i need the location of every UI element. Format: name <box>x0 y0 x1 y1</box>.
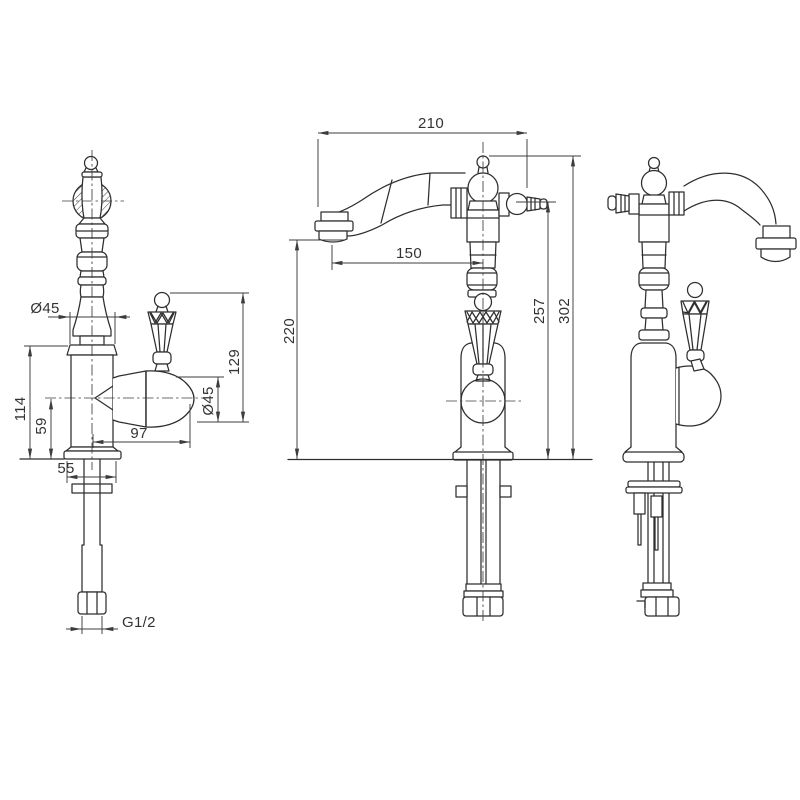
dim-label-220: 220 <box>281 318 298 344</box>
dim-label-302: 302 <box>556 298 573 324</box>
front-spout-bottom-edge <box>347 205 465 236</box>
front-shank-band <box>466 584 501 591</box>
dim-label-spout-diameter: Ø45 <box>30 300 59 317</box>
front-shank-ring <box>464 591 503 597</box>
persp-handle-collar <box>687 350 704 361</box>
persp-neck-ring1 <box>641 308 667 318</box>
dim-label-thread: G1/2 <box>122 614 156 631</box>
dim-label-129: 129 <box>226 349 243 375</box>
persp-neck-waist1 <box>645 290 663 308</box>
persp-neck-barrel <box>639 268 669 290</box>
side-base-plate <box>64 451 121 459</box>
persp-arm-tip <box>608 196 616 210</box>
side-mounting-washer <box>72 484 112 493</box>
dim-label-valve-diameter: Ø45 <box>200 386 217 415</box>
front-spout-mount-collar <box>451 188 467 218</box>
persp-spout-top-edge <box>684 173 776 224</box>
persp-handle-ball <box>688 283 703 298</box>
faucet-dimension-drawing: Ø45 114 59 129 <box>0 0 800 800</box>
front-shank-tab-left <box>456 486 467 497</box>
side-handle-stem <box>155 364 169 371</box>
front-shank-tab-right <box>500 486 511 497</box>
persp-stud-head-left <box>634 493 645 514</box>
persp-outlet-tip <box>761 249 790 262</box>
persp-finial-knob <box>649 158 660 169</box>
front-outlet-ring-1 <box>321 212 348 221</box>
side-supply-pipe <box>82 459 102 592</box>
persp-neck-ring2 <box>639 330 669 340</box>
side-valve-dome <box>146 371 194 427</box>
dim-label-59: 59 <box>33 417 50 434</box>
dim-side-inlet-thread: G1/2 <box>66 614 156 634</box>
side-handle-ball <box>155 293 170 308</box>
side-view-dimensions: Ø45 114 59 129 <box>12 293 249 634</box>
front-view-dimensions: 210 150 220 257 <box>281 115 581 459</box>
persp-base-bevel <box>625 447 682 452</box>
front-outlet-ring-2 <box>315 221 353 231</box>
persp-finial-collar <box>642 195 666 204</box>
persp-washer-top <box>628 481 680 487</box>
front-spout-top-edge <box>325 173 465 216</box>
dim-side-body-top-height: 114 <box>12 346 68 459</box>
dim-front-outlet-offset: 150 <box>332 245 483 270</box>
side-view: Ø45 114 59 129 <box>12 150 249 634</box>
side-finial-knob <box>85 157 98 170</box>
dim-label-55: 55 <box>57 460 74 477</box>
persp-finial-ball <box>642 171 667 196</box>
side-view-faucet-outline <box>20 157 194 615</box>
persp-arm-collar <box>629 194 639 214</box>
dim-label-97: 97 <box>130 425 147 442</box>
persp-stud-rod-left <box>638 514 641 545</box>
dim-label-150: 150 <box>396 245 422 262</box>
dim-front-handle-axis-height: 257 <box>516 202 556 459</box>
persp-base-plate <box>623 452 684 462</box>
dim-label-114: 114 <box>12 397 29 422</box>
perspective-faucet-outline <box>608 158 796 617</box>
persp-body <box>631 343 676 447</box>
dim-label-257: 257 <box>531 298 548 324</box>
persp-washer-bottom <box>626 487 682 493</box>
front-spout-seams <box>381 173 430 223</box>
front-view: 210 150 220 257 <box>281 115 592 622</box>
perspective-view <box>608 158 796 617</box>
dim-front-outlet-height: 220 <box>281 240 344 459</box>
persp-spout-mount <box>669 192 684 215</box>
side-handle-crystal <box>151 324 173 352</box>
side-handle-collar <box>153 352 171 364</box>
side-valve-horn <box>113 371 146 427</box>
dim-side-base-width: 55 <box>57 460 116 483</box>
persp-mast <box>639 204 669 242</box>
front-arm-tip <box>540 199 547 209</box>
persp-handle-crystal <box>683 314 707 350</box>
technical-drawing-canvas: Ø45 114 59 129 <box>0 0 800 800</box>
side-inlet-nut <box>78 592 106 614</box>
persp-shank-ring <box>641 590 673 597</box>
persp-stud-head-right <box>651 496 662 517</box>
front-arm-ball <box>507 194 528 215</box>
persp-valve-dome <box>676 366 721 426</box>
dim-label-210: 210 <box>418 115 444 132</box>
persp-nut-tick <box>637 601 645 608</box>
front-neck-barrel <box>467 268 497 290</box>
dim-side-valve-axis-height: 59 <box>33 399 51 459</box>
front-arm-knob <box>527 197 540 211</box>
persp-inlet-nut <box>645 597 679 616</box>
persp-stud-rod-right <box>655 517 658 550</box>
persp-outlet-ring-1 <box>763 226 790 238</box>
persp-spout-bottom-edge <box>684 200 760 225</box>
persp-arm-knob <box>616 194 629 213</box>
front-view-faucet-outline <box>288 156 592 616</box>
front-shank-tube <box>467 460 500 584</box>
persp-neck-waist2 <box>645 318 663 330</box>
persp-outlet-ring-2 <box>756 238 796 249</box>
persp-shank-band <box>643 583 671 590</box>
